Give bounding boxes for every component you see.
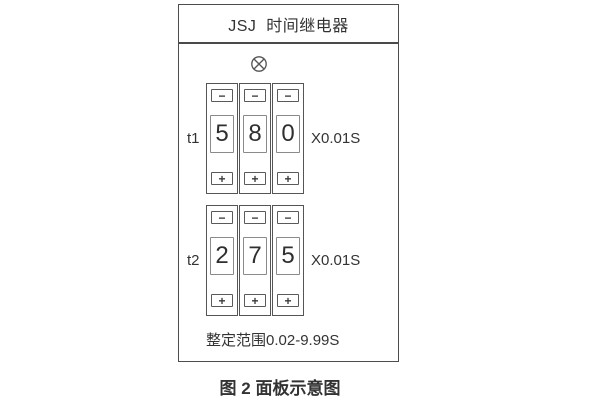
figure-caption: 图 2 面板示意图 <box>170 374 390 399</box>
multiplier-t1: X0.01S <box>311 130 360 147</box>
thumbwheel-t2-digit1: − 2 + <box>206 205 238 316</box>
digit-window: 5 <box>276 237 300 275</box>
plus-button: + <box>211 294 233 307</box>
thumbwheel-group-t2: − 2 + − 7 + − 5 + <box>206 205 304 316</box>
plus-button: + <box>211 172 233 185</box>
panel-title: JSJ 时间继电器 <box>228 12 349 36</box>
thumbwheel-t1-digit3: − 0 + <box>272 83 304 194</box>
setting-row-t2: t2 − 2 + − 7 + − 5 + X0.01S <box>179 205 398 316</box>
plus-button: + <box>277 172 299 185</box>
panel-header: JSJ 时间继电器 <box>179 5 398 44</box>
thumbwheel-t1-digit1: − 5 + <box>206 83 238 194</box>
minus-button: − <box>277 89 299 102</box>
digit-window: 2 <box>210 237 234 275</box>
setting-range-text: 整定范围0.02-9.99S <box>206 329 339 350</box>
thumbwheel-group-t1: − 5 + − 8 + − 0 + <box>206 83 304 194</box>
thumbwheel-t2-digit2: − 7 + <box>239 205 271 316</box>
plus-button: + <box>277 294 299 307</box>
figure-canvas: JSJ 时间继电器 t1 − 5 + − 8 + <box>0 0 600 400</box>
setting-row-t1: t1 − 5 + − 8 + − 0 + X0.01S <box>179 83 398 194</box>
minus-button: − <box>211 211 233 224</box>
plus-button: + <box>244 172 266 185</box>
relay-panel-outline: JSJ 时间继电器 t1 − 5 + − 8 + <box>178 4 399 362</box>
digit-window: 0 <box>276 115 300 153</box>
row-label-t2: t2 <box>187 252 206 269</box>
digit-window: 5 <box>210 115 234 153</box>
minus-button: − <box>277 211 299 224</box>
minus-button: − <box>211 89 233 102</box>
multiplier-t2: X0.01S <box>311 252 360 269</box>
thumbwheel-t2-digit3: − 5 + <box>272 205 304 316</box>
thumbwheel-t1-digit2: − 8 + <box>239 83 271 194</box>
digit-window: 8 <box>243 115 267 153</box>
row-label-t1: t1 <box>187 130 206 147</box>
minus-button: − <box>244 89 266 102</box>
plus-button: + <box>244 294 266 307</box>
minus-button: − <box>244 211 266 224</box>
digit-window: 7 <box>243 237 267 275</box>
indicator-lamp-icon <box>250 55 268 73</box>
